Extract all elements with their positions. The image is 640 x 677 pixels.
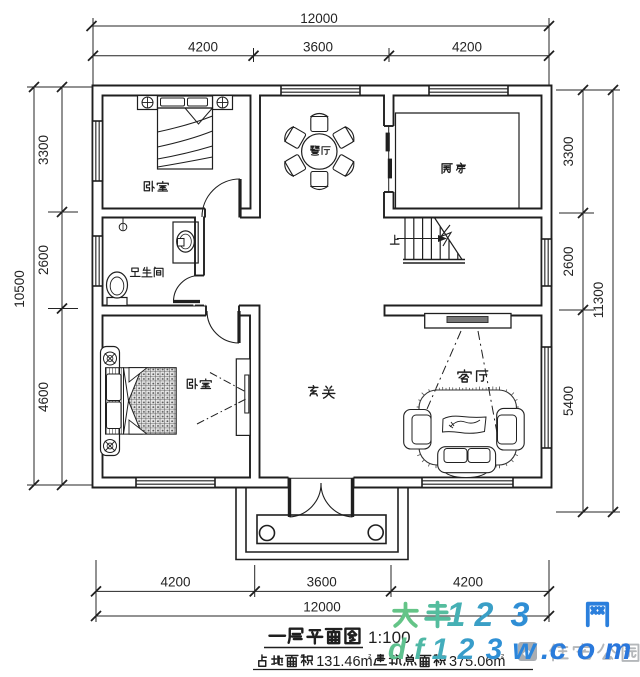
svg-text:3: 3 xyxy=(511,596,530,634)
svg-text:4200: 4200 xyxy=(160,575,190,590)
svg-text:131.46m: 131.46m xyxy=(316,654,372,670)
svg-text:1: 1 xyxy=(432,633,449,666)
svg-text:12000: 12000 xyxy=(303,600,341,615)
svg-text:4200: 4200 xyxy=(188,40,218,55)
svg-text:.: . xyxy=(541,633,549,666)
svg-text:m: m xyxy=(605,633,632,666)
svg-text:²: ² xyxy=(368,652,371,662)
svg-text:1: 1 xyxy=(447,596,466,634)
svg-text:5400: 5400 xyxy=(561,386,576,416)
svg-text:3300: 3300 xyxy=(36,135,51,165)
svg-text:o: o xyxy=(577,633,595,666)
svg-text:3300: 3300 xyxy=(561,136,576,166)
svg-text:2600: 2600 xyxy=(36,245,51,275)
svg-text:11300: 11300 xyxy=(591,282,606,319)
svg-text:3: 3 xyxy=(486,633,503,666)
svg-text:4200: 4200 xyxy=(452,40,482,55)
svg-text:4600: 4600 xyxy=(36,382,51,412)
svg-text:3600: 3600 xyxy=(307,575,337,590)
svg-text:w: w xyxy=(512,633,537,666)
svg-text:10500: 10500 xyxy=(12,270,27,308)
svg-text:2: 2 xyxy=(474,596,494,634)
svg-text:2: 2 xyxy=(457,633,475,666)
svg-text:4200: 4200 xyxy=(453,575,483,590)
svg-text:c: c xyxy=(550,633,567,666)
svg-text:3600: 3600 xyxy=(303,40,333,55)
svg-text:2600: 2600 xyxy=(561,246,576,276)
svg-text:d: d xyxy=(388,633,407,666)
svg-text:12000: 12000 xyxy=(300,11,338,26)
